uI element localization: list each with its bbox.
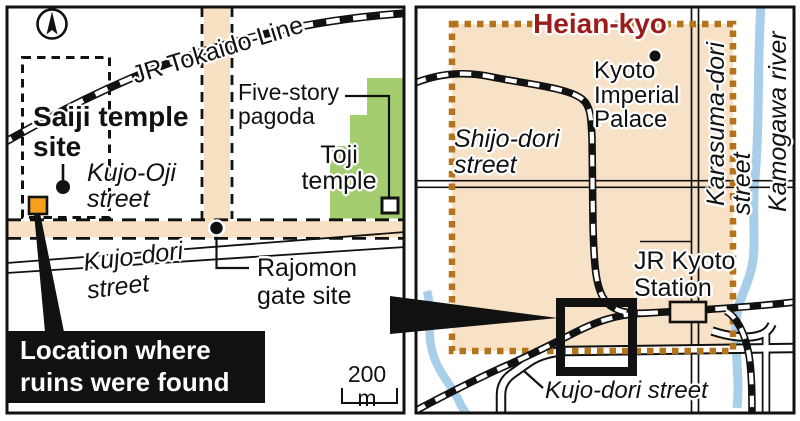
five-story-pagoda-label: Five-story pagoda — [238, 80, 339, 128]
kujo-oji-street-label: Kujo-Oji street — [87, 160, 176, 213]
toji-temple-label: Toji temple — [296, 142, 382, 195]
saiji-site-dot — [56, 180, 70, 194]
kamogawa-river-label: Kamogawa river — [765, 31, 791, 212]
scale-bar — [341, 388, 398, 404]
ruins-marker — [29, 197, 47, 214]
rajomon-gate-label: Rajomon gate site — [257, 254, 357, 310]
rajomon-gate-dot — [209, 221, 224, 236]
station-marker — [670, 302, 706, 322]
ruins-callout-box: Location where ruins were found — [8, 331, 265, 403]
saiji-site-label: Saiji temple site — [33, 102, 189, 162]
north-arrow-icon — [38, 10, 67, 39]
news-map-graphic: JR Tokaido Line Saiji temple site Kujo-O… — [0, 0, 800, 421]
pagoda-marker — [382, 198, 398, 213]
imperial-palace-label: Kyoto Imperial Palace — [594, 59, 679, 133]
ruins-callout-label: Location where ruins were found — [20, 335, 229, 398]
jr-kyoto-station-label: JR Kyoto Station — [634, 248, 735, 302]
kujo-dori-street-area — [7, 221, 405, 238]
shijo-dori-label: Shijo-dori street — [454, 126, 560, 178]
kujo-dori-street-label-right: Kujo-dori street — [545, 378, 708, 403]
karasuma-dori-label: Karasuma-dori — [703, 42, 729, 206]
kujo-leader-line — [524, 371, 543, 388]
karasuma-street-label: street — [729, 152, 755, 215]
heian-kyo-title: Heian-kyo — [500, 9, 700, 38]
